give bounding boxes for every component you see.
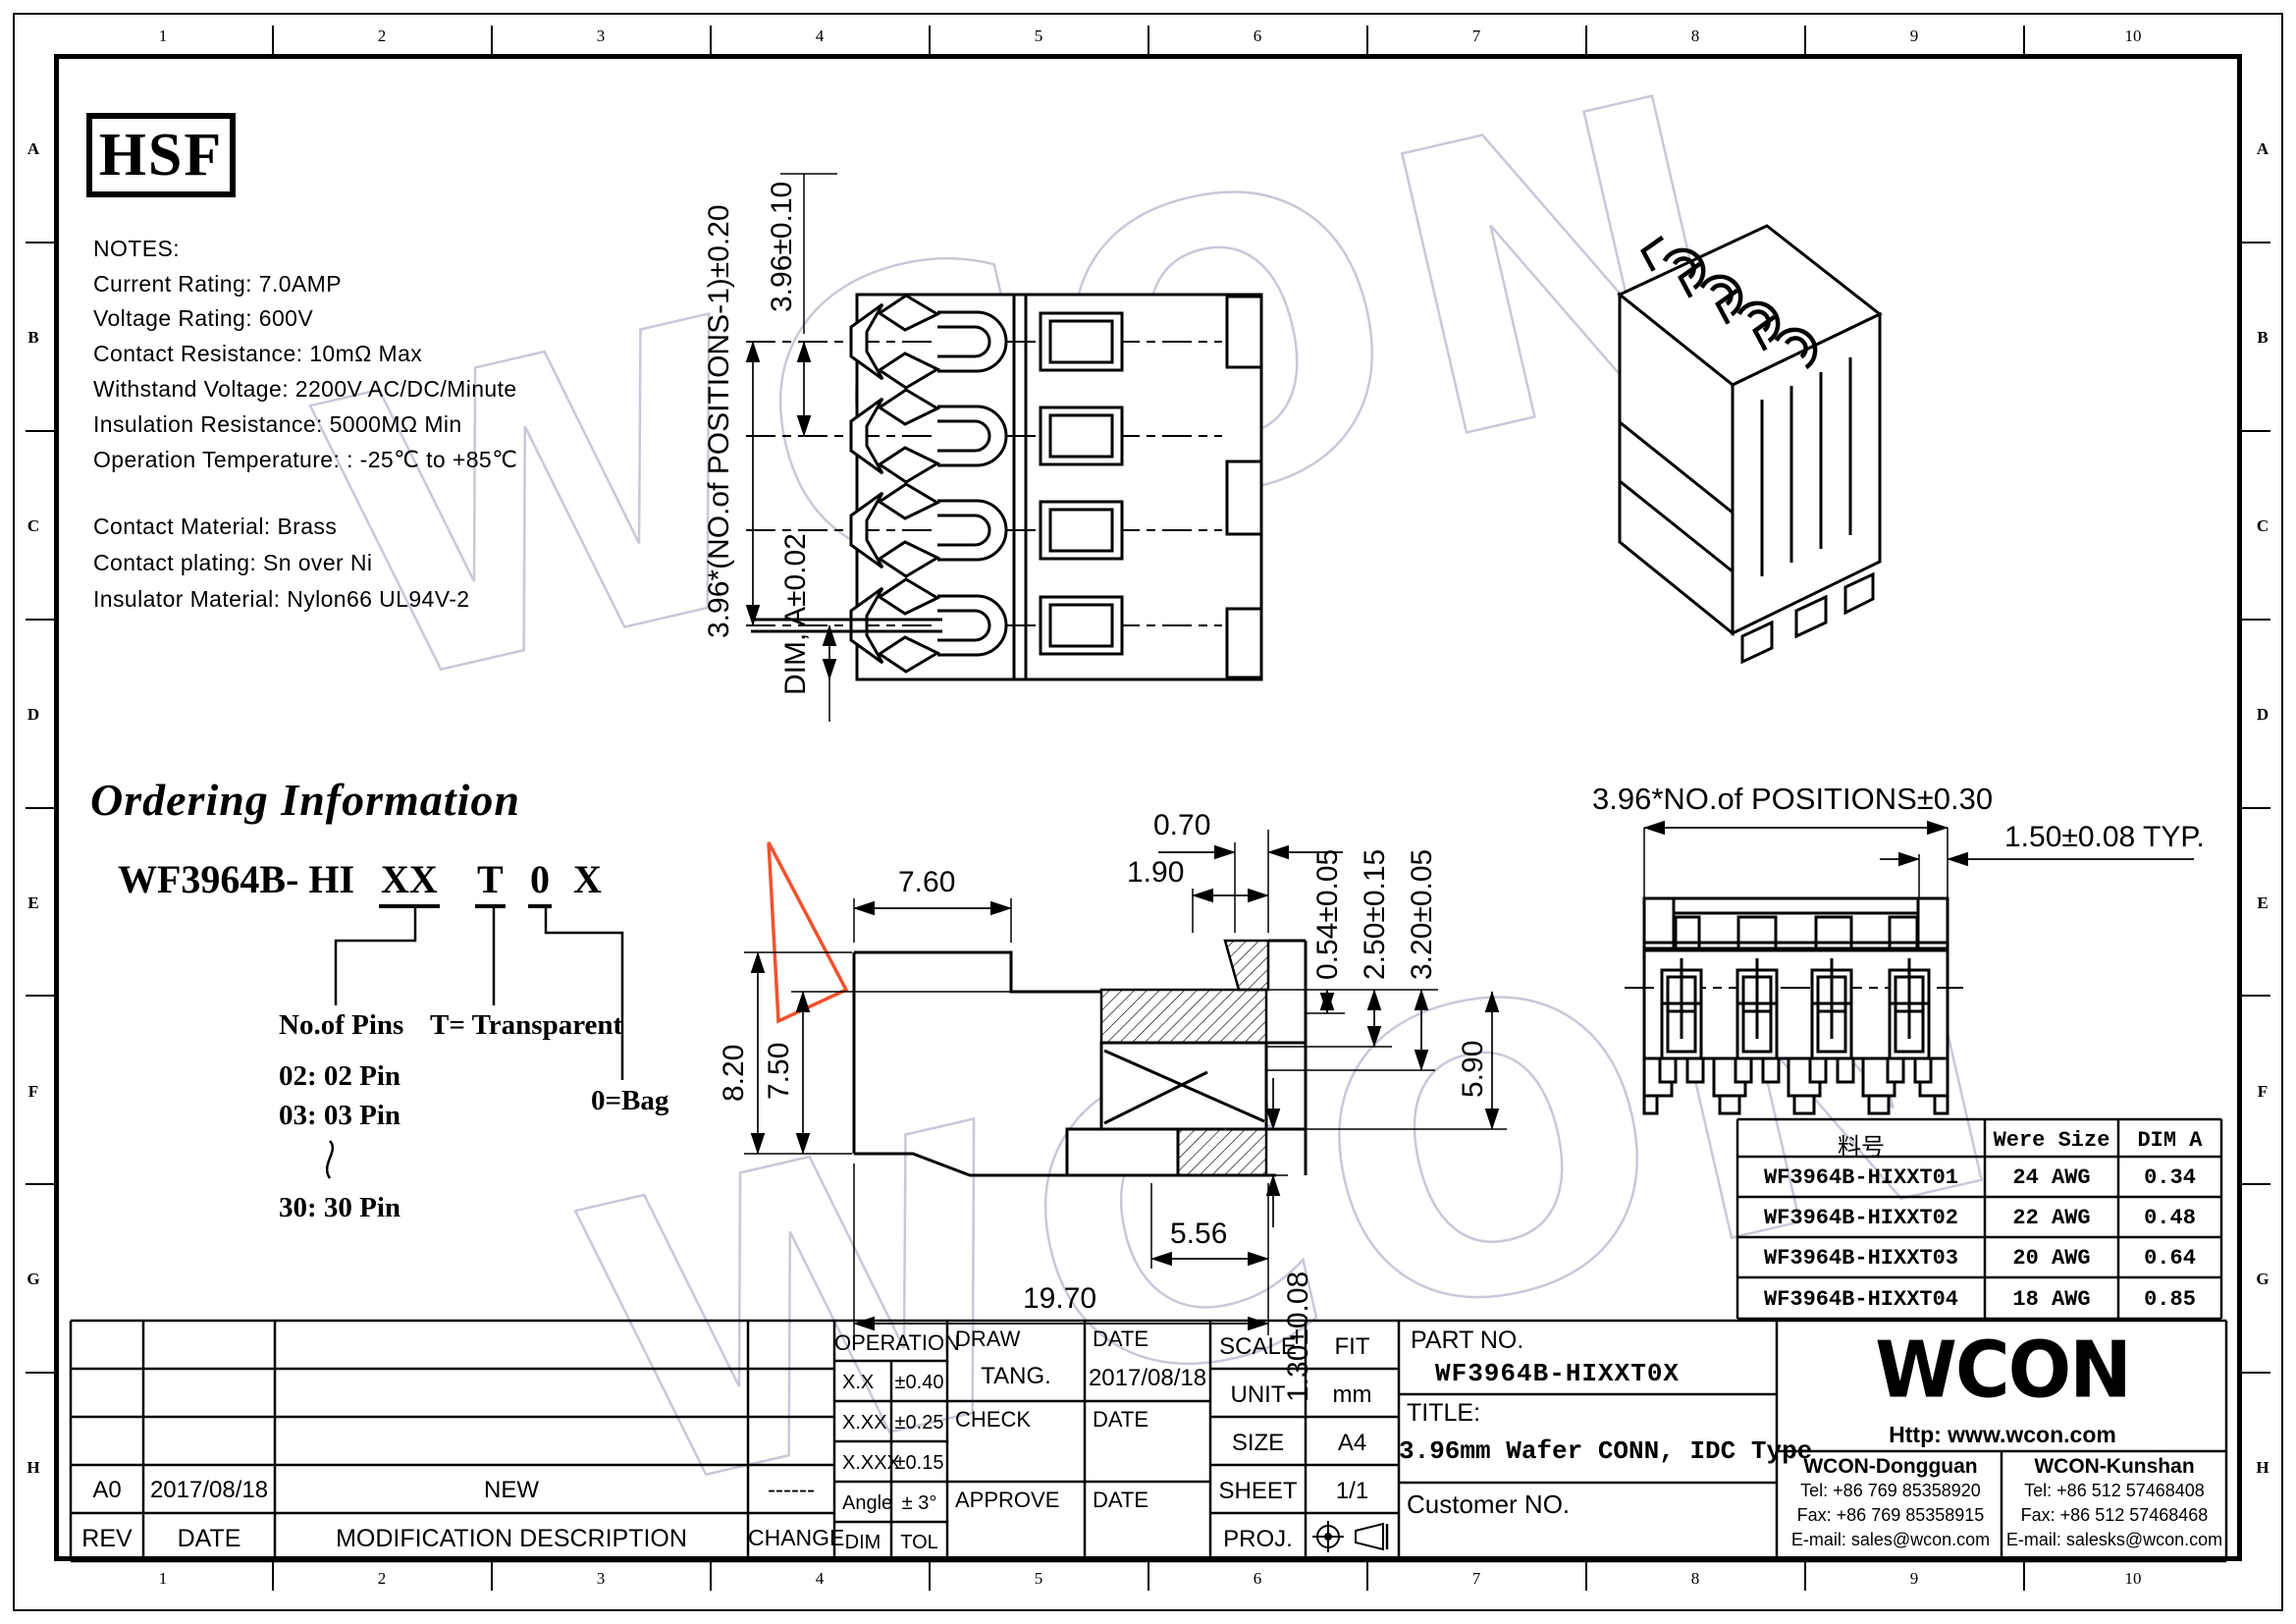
ordering-part-base: WF3964B- HI [118,856,354,902]
row-label-left-f: F [22,1082,45,1102]
parts-row2-awg: 22 AWG [1985,1206,2118,1230]
parts-row4-pn: WF3964B-HIXXT04 [1737,1287,1985,1312]
row-label-left-c: C [22,516,45,536]
customer-no-label: Customer NO. [1407,1489,1570,1520]
signoff-date2-label: DATE [1093,1407,1148,1433]
ordering-code-color: T [475,856,506,908]
note-current-rating: Current Rating: 7.0AMP [93,271,342,298]
revision-change-value: ------ [748,1477,834,1504]
revision-header-desc: MODIFICATION DESCRIPTION [275,1525,748,1553]
parts-row1-dim: 0.34 [2118,1165,2221,1190]
tol-angle-label: Angle [842,1492,892,1515]
col-label-bottom-4: 4 [800,1569,839,1589]
signoff-draw-label: DRAW [955,1326,1020,1352]
signoff-draw-name: TANG. [947,1363,1085,1390]
proj-label: PROJ. [1210,1526,1306,1553]
col-label-top-9: 9 [1895,27,1934,46]
parts-header-dim-a: DIM A [2118,1128,2221,1153]
col-label-top-2: 2 [362,27,401,46]
col-label-top-10: 10 [2113,27,2153,46]
signoff-check-label: CHECK [955,1407,1031,1433]
col-label-top-5: 5 [1019,27,1058,46]
wcon-logo: WCON [1779,1324,2226,1415]
ordering-pin03: 03: 03 Pin [279,1100,400,1132]
col-label-top-1: 1 [143,27,183,46]
tol-xx-value: ±0.40 [891,1372,947,1394]
col-label-bottom-6: 6 [1238,1569,1277,1589]
col-label-bottom-3: 3 [581,1569,620,1589]
note-contact-plating: Contact plating: Sn over Ni [93,550,372,576]
title-label: TITLE: [1407,1399,1480,1428]
unit-label: UNIT [1210,1381,1306,1409]
note-contact-resistance: Contact Resistance: 10mΩ Max [93,341,422,367]
col-label-top-8: 8 [1676,27,1715,46]
note-voltage-rating: Voltage Rating: 600V [93,305,313,332]
parts-row4-dim: 0.85 [2118,1287,2221,1312]
parts-row2-pn: WF3964B-HIXXT02 [1737,1206,1985,1230]
revision-rev-value: A0 [71,1477,143,1504]
ordering-code-pack: 0 [528,856,552,908]
dongguan-email: E-mail: sales@wcon.com [1780,1530,2002,1550]
col-label-bottom-7: 7 [1457,1569,1496,1589]
col-label-top-4: 4 [800,27,839,46]
part-no-label: PART NO. [1411,1326,1523,1355]
ordering-heading: Ordering Information [90,774,520,826]
ordering-pin30: 30: 30 Pin [279,1192,400,1224]
revision-header-rev: REV [71,1525,143,1553]
tol-xxx-label: X.XX [842,1412,887,1435]
ordering-code-pins: XX [379,856,440,908]
tol-xxxx-value: ±0.15 [891,1452,947,1475]
kunshan-email: E-mail: salesks@wcon.com [2003,1530,2225,1550]
tol-tol-label: TOL [891,1532,947,1554]
parts-row1-awg: 24 AWG [1985,1165,2118,1190]
row-label-right-e: E [2251,893,2274,913]
col-label-top-3: 3 [581,27,620,46]
sheet-value: 1/1 [1306,1478,1399,1505]
tol-angle-value: ± 3° [891,1492,947,1515]
col-label-bottom-9: 9 [1895,1569,1934,1589]
hsf-logo: HSF [86,113,236,197]
row-label-right-b: B [2251,328,2274,348]
sheet-label: SHEET [1210,1478,1306,1505]
revision-header-change: CHANGE [748,1525,834,1551]
note-insulator-material: Insulator Material: Nylon66 UL94V-2 [93,586,469,613]
tol-xxx-value: ±0.25 [891,1412,947,1435]
revision-header-date: DATE [143,1525,275,1553]
ordering-label-pins: No.of Pins [279,1009,403,1042]
row-label-right-d: D [2251,705,2274,725]
tol-dim-label: DIM [834,1532,891,1554]
part-no-value: WF3964B-HIXXT0X [1435,1359,1680,1388]
size-label: SIZE [1210,1430,1306,1457]
parts-row3-pn: WF3964B-HIXXT03 [1737,1246,1985,1271]
dongguan-fax: Fax: +86 769 85358915 [1780,1505,2002,1526]
tol-xx-label: X.X [842,1372,874,1394]
row-label-right-f: F [2251,1082,2274,1102]
signoff-date3-label: DATE [1093,1488,1148,1513]
tolerance-header: OPERATION [834,1330,947,1356]
signoff-approve-label: APPROVE [955,1488,1059,1513]
wcon-url: Http: www.wcon.com [1779,1422,2226,1448]
scale-label: SCALE [1210,1333,1306,1361]
dongguan-tel: Tel: +86 769 85358920 [1780,1481,2002,1501]
col-label-top-7: 7 [1457,27,1496,46]
col-label-bottom-1: 1 [143,1569,183,1589]
note-contact-material: Contact Material: Brass [93,514,337,540]
drawing-sheet: WCON WCON [0,0,2296,1624]
ordering-code-x: X [573,856,602,902]
row-label-right-g: G [2251,1270,2274,1289]
revision-date-value: 2017/08/18 [143,1477,275,1504]
col-label-bottom-5: 5 [1019,1569,1058,1589]
row-label-right-h: H [2251,1458,2274,1478]
col-label-bottom-8: 8 [1676,1569,1715,1589]
hsf-logo-text: HSF [99,125,224,186]
parts-row3-dim: 0.64 [2118,1246,2221,1271]
parts-header-material-no: 料号 [1737,1127,1985,1162]
projection-symbol-icon [1308,1518,1397,1555]
kunshan-fax: Fax: +86 512 57468468 [2003,1505,2225,1526]
row-label-left-g: G [22,1270,45,1289]
row-label-left-h: H [22,1458,45,1478]
kunshan-tel: Tel: +86 512 57468408 [2003,1481,2225,1501]
row-label-right-a: A [2251,139,2274,159]
scale-value: FIT [1306,1333,1399,1361]
parts-row1-pn: WF3964B-HIXXT01 [1737,1165,1985,1190]
col-label-bottom-10: 10 [2113,1569,2153,1589]
ordering-label-transparent: T= Transparent [430,1009,622,1042]
col-label-bottom-2: 2 [362,1569,401,1589]
signoff-draw-date: 2017/08/18 [1085,1365,1210,1392]
row-label-left-e: E [22,893,45,913]
kunshan-name: WCON-Kunshan [2003,1455,2225,1479]
row-label-left-b: B [22,328,45,348]
parts-row4-awg: 18 AWG [1985,1287,2118,1312]
parts-row2-dim: 0.48 [2118,1206,2221,1230]
note-insulation-resistance: Insulation Resistance: 5000MΩ Min [93,411,462,438]
parts-header-wire-size: Were Size [1985,1128,2118,1153]
row-label-left-a: A [22,139,45,159]
row-label-left-d: D [22,705,45,725]
title-value: 3.96mm Wafer CONN, IDC Type [1399,1436,1777,1466]
signoff-date1-label: DATE [1093,1326,1148,1352]
revision-desc-value: NEW [275,1477,748,1504]
note-withstand-voltage: Withstand Voltage: 2200V AC/DC/Minute [93,376,517,403]
note-operation-temperature: Operation Temperature: : -25℃ to +85℃ [93,447,517,473]
parts-row3-awg: 20 AWG [1985,1246,2118,1271]
unit-value: mm [1306,1381,1399,1409]
row-label-right-c: C [2251,516,2274,536]
size-value: A4 [1306,1430,1399,1457]
ordering-label-bag: 0=Bag [591,1085,668,1117]
dongguan-name: WCON-Dongguan [1780,1455,2002,1479]
ordering-pin02: 02: 02 Pin [279,1060,400,1093]
notes-title: NOTES: [93,236,180,262]
col-label-top-6: 6 [1238,27,1277,46]
